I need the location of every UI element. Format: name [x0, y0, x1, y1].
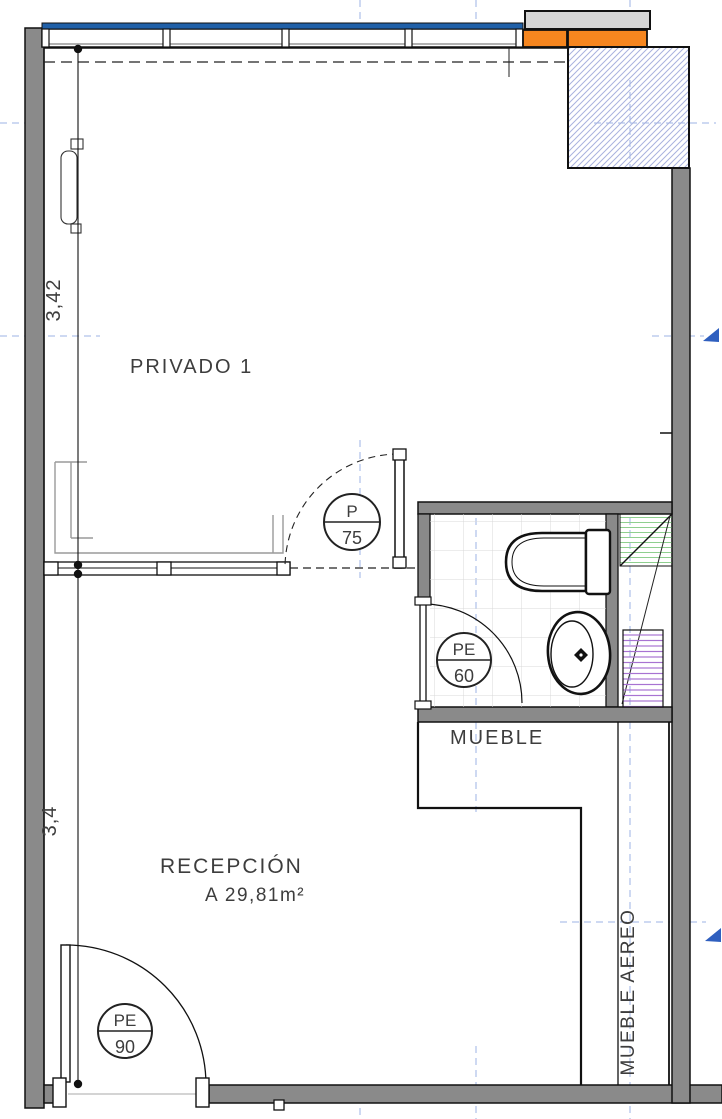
room-label-privado: PRIVADO 1 — [130, 356, 253, 378]
hatched-shaft — [568, 47, 689, 168]
door-pe60-frame — [415, 701, 431, 709]
radiator-valve-top — [71, 139, 83, 149]
orange-beam-right — [568, 30, 647, 47]
toilet — [506, 530, 610, 594]
floor-plan-canvas: P 75 PE 60 PE 90 PRIVADO 1 RECEPCIÓN A 2… — [0, 0, 722, 1119]
mueble-aereo-label: MUEBLE AEREO — [618, 909, 639, 1076]
room-area-label: A 29,81m² — [205, 885, 305, 906]
door-tag-pe60: PE 60 — [437, 633, 491, 687]
radiator-body — [61, 151, 77, 224]
gray-beam — [525, 11, 650, 29]
door-tag-top-text: PE — [114, 1011, 137, 1030]
closet-purple-shelf — [623, 630, 663, 707]
door-p75-frame — [393, 449, 406, 460]
radiator — [61, 139, 83, 233]
section-arrow-icon — [703, 328, 719, 342]
partition-post — [157, 562, 171, 575]
bottom-wall — [209, 1085, 722, 1103]
closet — [620, 514, 672, 707]
radiator-valve-bottom — [71, 224, 81, 233]
door-pe90-frame — [196, 1078, 209, 1107]
dimension-endpoint — [74, 1080, 82, 1088]
door-tag-pe90: PE 90 — [98, 1004, 152, 1058]
dimension-endpoint — [74, 561, 82, 569]
orange-beam-left — [523, 30, 567, 47]
partition-post — [44, 562, 58, 575]
right-wall — [672, 168, 690, 1103]
window-mullion — [282, 29, 289, 47]
door-tag-bottom-text: 75 — [342, 528, 362, 548]
door-p75-frame — [393, 557, 406, 568]
left-wall — [25, 28, 44, 1108]
mueble-counter-outline — [418, 722, 581, 1085]
door-tag-bottom-text: 90 — [115, 1037, 135, 1057]
chair-outline — [55, 462, 93, 538]
toilet-tank — [586, 530, 610, 594]
door-tag-top-text: PE — [453, 640, 476, 659]
door-pe60-leaf — [420, 604, 426, 702]
dimension-label-recepcion: 3,4 — [39, 806, 61, 837]
faucet-hole — [579, 653, 582, 656]
door-p75-leaf — [395, 450, 404, 568]
bathroom-bottom-wall — [418, 707, 672, 722]
dimension-endpoint — [74, 570, 82, 578]
dimension-endpoint — [74, 45, 82, 53]
bathroom-left-wall — [418, 514, 430, 600]
desk-outline — [55, 462, 283, 553]
door-tag-top-text: P — [346, 502, 357, 521]
window-mullion — [163, 29, 170, 47]
window-band — [42, 23, 523, 47]
mueble-label: MUEBLE — [450, 727, 544, 749]
window-glazing-bar — [42, 23, 523, 29]
bathroom-top-wall — [418, 502, 672, 514]
window-mullion — [405, 29, 412, 47]
door-pe90-leaf — [61, 945, 70, 1082]
privado-furniture — [55, 462, 283, 553]
window-mullion — [516, 29, 523, 47]
grid-section-arrows — [703, 328, 721, 942]
door-tag-p75: P 75 — [324, 494, 380, 550]
door-tag-bottom-text: 60 — [454, 666, 474, 686]
section-arrow-icon — [705, 928, 721, 942]
door-pe90-frame — [53, 1078, 66, 1107]
toilet-bowl — [506, 533, 586, 591]
room-label-recepcion: RECEPCIÓN — [160, 855, 303, 878]
partition-post — [277, 562, 290, 575]
bottom-wall-tick — [274, 1100, 284, 1110]
door-pe60-frame — [415, 597, 431, 605]
window-mullion — [42, 29, 49, 47]
dimension-label-privado: 3,42 — [43, 279, 65, 322]
